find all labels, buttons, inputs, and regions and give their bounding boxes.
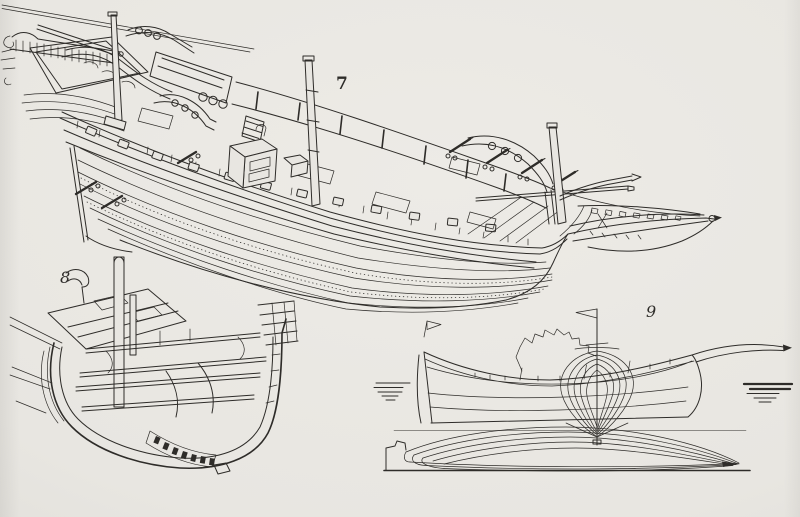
stern-scrolls [1, 36, 15, 85]
halfbreadth-stern-boot [386, 441, 406, 470]
galley-stove [228, 124, 277, 188]
gunport-row [85, 126, 496, 232]
sternpost-rudder [417, 352, 432, 423]
body-flag [576, 309, 597, 318]
water-mark-right [747, 394, 779, 403]
pump-tube [130, 295, 136, 355]
waterlines-bottom [410, 462, 739, 471]
keel-line [431, 417, 688, 423]
bulwark-rails-right [258, 301, 298, 345]
cabin-porthole [209, 96, 217, 104]
figure-9-lines-plan [370, 295, 800, 510]
stem-and-beak [688, 345, 784, 417]
figurehead-snout [714, 215, 722, 221]
fore-bumpkin [560, 174, 641, 200]
stringers [76, 373, 260, 411]
rail-stanchions [77, 121, 528, 245]
figure-8-label: 8 [60, 270, 70, 286]
companion-box [284, 155, 308, 177]
plate-page: 7 8 9 [0, 0, 800, 517]
far-quarter-rail [126, 27, 194, 53]
broken-bulwark-edge [516, 329, 596, 371]
deck-beams [80, 333, 266, 377]
main-mast [305, 60, 320, 206]
lateen-yard [2, 5, 254, 52]
beak-tip [783, 345, 792, 352]
deck-gratings-dark [94, 295, 162, 321]
cannon-muzzles [468, 138, 578, 174]
water-mark-left [374, 383, 410, 400]
waterlines-top [406, 427, 739, 465]
companion-stair [242, 116, 264, 142]
aft-gangway-arch [154, 95, 216, 130]
poop-grating [36, 41, 140, 89]
bow-deck-beams [468, 198, 592, 243]
far-bow-rail [550, 188, 700, 216]
figure-7-label: 7 [336, 76, 348, 93]
riders [166, 363, 213, 417]
mast [114, 257, 124, 407]
cabin-porthole [219, 100, 227, 108]
buttock-lines [428, 387, 688, 411]
far-bulwark-rails [232, 82, 550, 208]
sheer-rail [425, 359, 694, 386]
figure-9-label: 9 [646, 304, 656, 320]
cabin-porthole [199, 93, 207, 101]
poop-grating-frame [30, 37, 148, 93]
deck-stubs [475, 359, 670, 381]
stern-flagstaff [424, 321, 441, 337]
figure-8-midship-section [10, 255, 310, 490]
fore-mast [549, 127, 566, 224]
beam-knees [106, 329, 244, 373]
water-mark-right-bold [744, 384, 792, 389]
